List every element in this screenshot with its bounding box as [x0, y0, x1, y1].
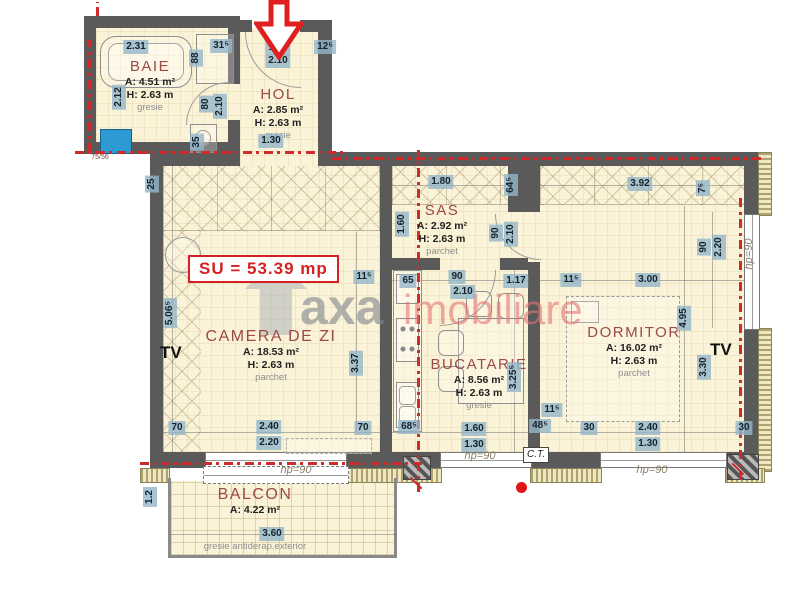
room-hol-area: A: 2.85 m² [236, 104, 320, 117]
room-baie-floor: gresie [92, 102, 208, 114]
parapet-height-label: hp=90 [462, 449, 499, 463]
dimension-label: 75/56 [88, 151, 112, 165]
dimension-label: 1.60 [395, 211, 409, 236]
room-sas-height: H: 2.63 m [400, 233, 484, 246]
insulation-right-bottom [758, 328, 772, 472]
dimension-label: 12⁵ [314, 40, 336, 54]
wall-main-top-left [150, 152, 240, 166]
section-line [75, 151, 343, 154]
window-balcony-sill [203, 466, 349, 484]
dimension-label: 70 [168, 421, 185, 435]
dimension-label: 1.2 [143, 487, 157, 507]
pillar-hatched-right [727, 454, 759, 480]
dimension-label: 88 [189, 49, 203, 66]
dimension-label: 11⁵ [353, 270, 374, 284]
room-camera-de-zi: CAMERA DE ZI A: 18.53 m² H: 2.63 m parch… [186, 328, 356, 384]
room-camera-floor: parchet [186, 372, 356, 384]
wall-camera-sas-kitchen [380, 166, 392, 452]
hatch-band-camera-top [163, 166, 380, 231]
dimension-label: 2.10 [504, 221, 518, 246]
dimension-label: 1.80 [428, 175, 453, 189]
tv-label-left: TV [160, 343, 182, 363]
room-balcon-floor: gresie antiderap.exterior [180, 541, 330, 553]
wall-sas-kitchen-left [392, 258, 440, 270]
dimension-label: 65 [399, 274, 416, 288]
room-hol-name: HOL [236, 86, 320, 104]
dimension-label: 5.06⁵ [163, 298, 177, 328]
section-line [88, 40, 91, 152]
dimension-label: 7⁵ [696, 180, 710, 196]
dimension-label: 68⁵ [398, 420, 420, 434]
dimension-label: 30 [735, 421, 752, 435]
insulation-right-top [758, 152, 772, 216]
wall-main-left [150, 152, 163, 470]
dimension-label: 2.40 [256, 420, 281, 434]
wall-bottom-1 [150, 452, 205, 468]
room-baie-height: H: 2.63 m [92, 89, 208, 102]
dimension-label: 3.30 [697, 354, 711, 379]
dimension-label: 4.95 [677, 305, 691, 330]
dimension-label: 2.31 [123, 40, 148, 54]
room-sas: SAS A: 2.92 m² H: 2.63 m parchet [400, 202, 484, 258]
dimension-line [712, 212, 713, 328]
dimension-label: 3.25⁵ [507, 362, 521, 392]
room-camera-height: H: 2.63 m [186, 359, 356, 372]
dimension-label: 70 [354, 421, 371, 435]
total-usable-area-label: SU = 53.39 mp [188, 255, 339, 283]
dimension-label: C.T. [523, 447, 549, 463]
room-sas-floor: parchet [400, 246, 484, 258]
entrance-arrow-icon [254, 0, 304, 60]
room-hol-height: H: 2.63 m [236, 117, 320, 130]
dimension-label: 1.30 [635, 437, 660, 451]
room-sas-name: SAS [400, 202, 484, 220]
parapet-height-label: hp=90 [742, 236, 756, 273]
dimension-label: 48⁵ [529, 419, 551, 433]
room-camera-name: CAMERA DE ZI [186, 328, 356, 346]
wall-hol-top-left [240, 20, 252, 32]
sofa [286, 438, 372, 454]
bed-pillow [571, 301, 599, 323]
dimension-label: 3.60 [259, 527, 284, 541]
dimension-label: 2.10 [450, 285, 475, 299]
room-dormitor-floor: parchet [580, 368, 688, 380]
room-balcon-name: BALCON [180, 486, 330, 504]
dimension-label: 2.10 [213, 93, 227, 118]
kitchen-stove [396, 318, 419, 362]
chair [498, 293, 524, 319]
room-balcon: BALCON A: 4.22 m² gresie antiderap.exter… [180, 486, 330, 553]
kitchen-sink-bowl-1 [399, 386, 416, 405]
dimension-label: 1.17 [503, 274, 528, 288]
dimension-label: 11⁵ [541, 403, 562, 417]
dimension-label: 2.20 [712, 234, 726, 259]
dimension-label: 90 [697, 238, 711, 255]
dimension-label: 3.37 [349, 350, 363, 375]
parapet-height-label: hp=90 [278, 463, 315, 477]
dimension-label: 1.60 [461, 422, 486, 436]
dimension-label: 90 [489, 224, 503, 241]
floor-plan: axa imobiliare SU = 53.39 mp BAIE A: 4.5… [0, 0, 800, 602]
dimension-label: 2.40 [635, 421, 660, 435]
dimension-label: 25 [145, 175, 159, 192]
dimension-label: 11⁵ [560, 273, 581, 287]
insulation-bottom-3 [530, 468, 602, 483]
section-line [96, 2, 99, 16]
room-camera-area: A: 18.53 m² [186, 346, 356, 359]
parapet-height-label: hp=90 [634, 463, 671, 477]
room-dormitor-name: DORMITOR [580, 324, 688, 342]
dimension-label: 64⁵ [504, 174, 518, 196]
wall-right-top [744, 152, 758, 214]
dimension-label: 1.30 [258, 134, 283, 148]
room-bucatarie-floor: gresie [424, 400, 534, 412]
balcony-rail-bottom [168, 555, 397, 558]
dimension-label: 90 [448, 270, 465, 284]
wall-right-bottom [744, 328, 758, 470]
insulation-bottom-1 [140, 468, 170, 483]
chair [438, 330, 464, 356]
room-baie-area: A: 4.51 m² [92, 76, 208, 89]
section-line [332, 157, 764, 160]
dimension-label: 35 [190, 133, 204, 150]
dimension-label: 3.00 [635, 273, 660, 287]
balcony-rail-right [394, 478, 397, 558]
room-sas-area: A: 2.92 m² [400, 220, 484, 233]
balcony-rail-left [168, 478, 171, 558]
dimension-label: 31⁵ [210, 39, 232, 53]
wall-baie-top [84, 16, 240, 28]
room-dormitor: DORMITOR A: 16.02 m² H: 2.63 m parchet [580, 324, 688, 380]
dimension-label: 30 [580, 421, 597, 435]
dimension-line [356, 232, 357, 432]
room-balcon-area: A: 4.22 m² [180, 504, 330, 517]
tv-label-right: TV [710, 340, 732, 360]
dimension-label: 2.12 [112, 84, 126, 109]
dimension-label: 3.92 [627, 177, 652, 191]
room-dormitor-area: A: 16.02 m² [580, 342, 688, 355]
dimension-label: 80 [199, 95, 213, 112]
room-dormitor-height: H: 2.63 m [580, 355, 688, 368]
dimension-label: 2.20 [256, 436, 281, 450]
red-dot [516, 482, 527, 493]
